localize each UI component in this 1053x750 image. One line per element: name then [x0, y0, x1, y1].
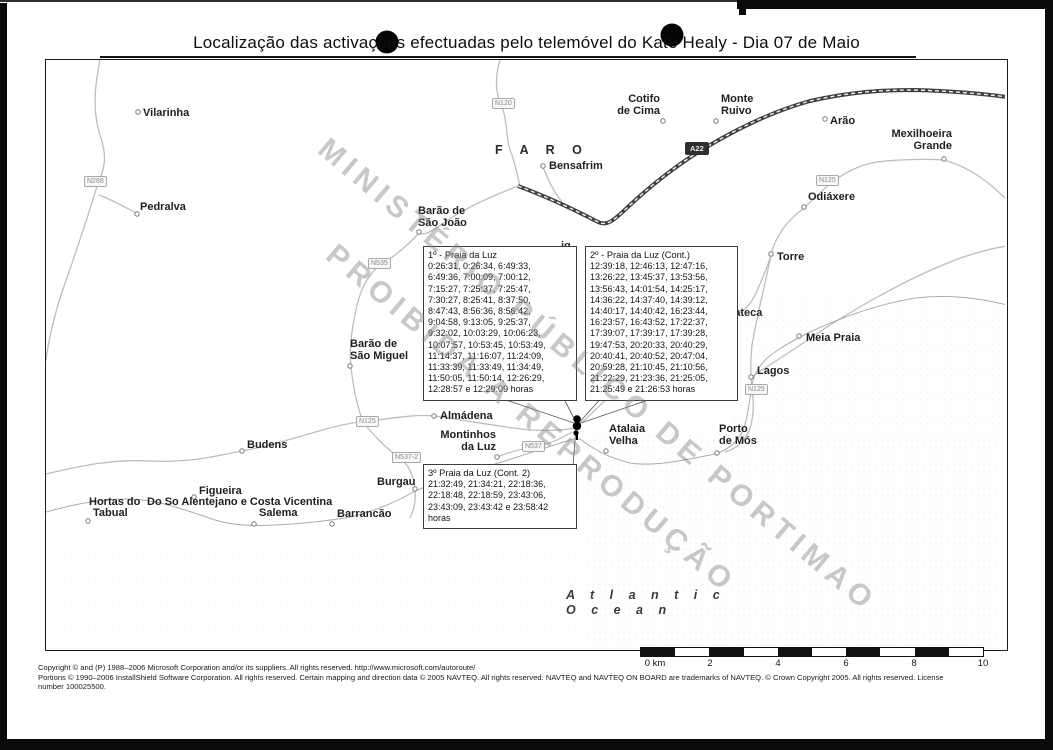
place-label-meia-praia: Meia Praia — [806, 332, 860, 344]
road-badge-n125-lagos: N125 — [745, 384, 768, 395]
road-badge-n120: N120 — [492, 98, 515, 109]
place-label-almadena: Almádena — [440, 410, 493, 422]
place-label-torre: Torre — [777, 251, 804, 263]
callout-times: 21:32:49, 21:34:21, 22:18:36,22:18:48, 2… — [428, 479, 572, 524]
place-label-monte-ruivo: Monte Ruivo — [721, 93, 753, 117]
scan-edge-top-right — [737, 0, 1053, 9]
shore-texture — [62, 532, 582, 644]
place-label-parque-natural: Do So Alentejano e Costa Vicentina — [147, 496, 332, 508]
place-label-barao-de-sao-miguel: Barão de São Miguel — [350, 338, 408, 362]
scan-edge-left — [0, 3, 7, 750]
faro-direction-label: F A R O — [495, 143, 589, 157]
callout-praia-da-luz-3: 3º Praia da Luz (Cont. 2) 21:32:49, 21:3… — [423, 464, 577, 529]
place-label-odiaxere: Odiáxere — [808, 191, 855, 203]
place-label-barrancao: Barrancão — [337, 508, 391, 520]
place-label-montinhos-da-luz: Montinhos da Luz — [434, 429, 496, 453]
atlantic-ocean-label: A t l a n t i c O c e a n — [566, 588, 726, 618]
scan-edge-top — [0, 0, 737, 2]
scan-edge-right — [1045, 0, 1053, 750]
place-label-tabual: Tabual — [93, 507, 128, 519]
scanned-map-page: Localização das activações efectuadas pe… — [0, 0, 1053, 750]
place-label-salema: Salema — [259, 507, 298, 519]
road-badge-n268: N268 — [84, 176, 107, 187]
place-label-burgau: Burgau — [377, 476, 416, 488]
callout-title: 2º - Praia da Luz (Cont.) — [590, 250, 733, 261]
copyright-line-1: Copyright © and (P) 1988–2006 Microsoft … — [38, 663, 1023, 673]
road-badge-n125-northeast: N125 — [816, 175, 839, 186]
place-label-cotifo-de-cima: Cotifo de Cima — [610, 93, 660, 117]
place-label-porto-de-mos: Porto de Mós — [719, 423, 757, 447]
place-label-arao: Arão — [830, 115, 855, 127]
road-badge-n537-2: N537-2 — [392, 452, 421, 463]
place-label-mexilhoeira-grande: Mexilhoeira Grande — [880, 128, 952, 152]
scale-bar — [640, 647, 984, 657]
road-badge-a22: A22 — [685, 142, 709, 155]
callout-title: 3º Praia da Luz (Cont. 2) — [428, 468, 572, 479]
title-underline — [100, 56, 916, 58]
copyright-line-3: number 100025500. — [38, 682, 1023, 692]
page-title: Localização das activações efectuadas pe… — [45, 33, 1008, 53]
copyright-notice: Copyright © and (P) 1988–2006 Microsoft … — [38, 663, 1023, 692]
place-label-pedralva: Pedralva — [140, 201, 186, 213]
scan-edge-bottom — [0, 739, 1053, 750]
place-label-lagos: Lagos — [757, 365, 789, 377]
copyright-line-2: Portions © 1990–2006 InstallShield Softw… — [38, 673, 1023, 683]
place-label-bensafrim: Bensafrim — [549, 160, 603, 172]
road-badge-n125-west: N125 — [356, 416, 379, 427]
place-label-budens: Budens — [247, 439, 287, 451]
scan-edge-notch — [739, 0, 746, 15]
place-label-vilarinha: Vilarinha — [143, 107, 189, 119]
